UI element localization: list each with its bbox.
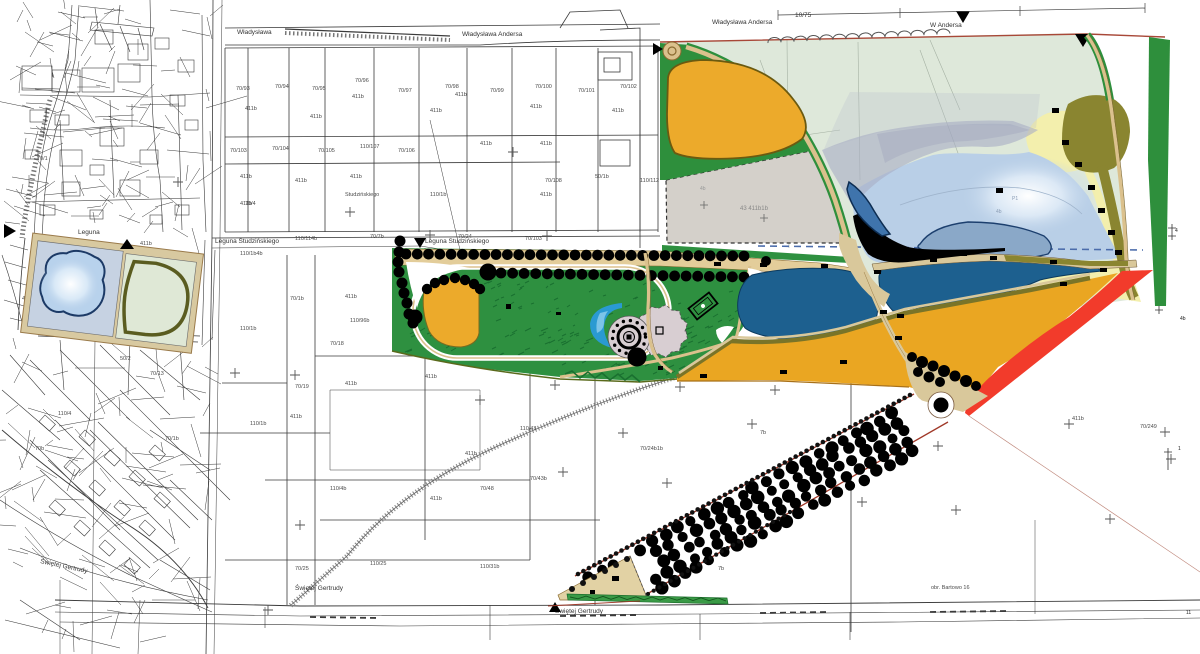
svg-text:411b: 411b — [480, 141, 492, 147]
svg-text:110/25: 110/25 — [370, 561, 386, 567]
svg-text:411b: 411b — [465, 451, 477, 457]
svg-text:Leguna Studzińskiego: Leguna Studzińskiego — [425, 238, 489, 245]
svg-text:70/13: 70/13 — [150, 371, 164, 377]
svg-text:110/4: 110/4 — [58, 411, 71, 417]
svg-text:Władysława Andersa: Władysława Andersa — [462, 31, 523, 38]
svg-text:70/97: 70/97 — [398, 88, 412, 94]
svg-text:110/1b: 110/1b — [430, 192, 446, 198]
svg-text:43 411b1b: 43 411b1b — [740, 206, 769, 212]
svg-text:411b: 411b — [295, 178, 307, 184]
svg-text:70/96: 70/96 — [355, 78, 369, 84]
svg-text:411b: 411b — [530, 104, 542, 110]
svg-text:Studzińskiego: Studzińskiego — [345, 192, 379, 198]
svg-text:110/31b: 110/31b — [480, 564, 499, 570]
svg-text:70/99: 70/99 — [490, 88, 504, 94]
svg-text:110/1b4b: 110/1b4b — [240, 251, 263, 257]
svg-text:70/103: 70/103 — [525, 236, 542, 242]
svg-text:P1: P1 — [1012, 196, 1018, 202]
svg-text:411b: 411b — [425, 374, 437, 380]
svg-text:70/24b1b: 70/24b1b — [640, 446, 663, 452]
svg-text:4b: 4b — [996, 209, 1002, 215]
svg-text:411b: 411b — [240, 174, 252, 180]
svg-text:70/7b: 70/7b — [370, 234, 384, 240]
svg-text:7b: 7b — [718, 566, 724, 572]
svg-text:411b: 411b — [350, 174, 362, 180]
svg-text:110/4b: 110/4b — [330, 486, 346, 492]
svg-text:obr. Bartowo 16: obr. Bartowo 16 — [931, 585, 970, 591]
svg-text:411b: 411b — [540, 141, 552, 147]
svg-text:Władysława Andersa: Władysława Andersa — [712, 19, 773, 26]
svg-text:110/1b: 110/1b — [250, 421, 266, 427]
svg-text:110/107: 110/107 — [360, 144, 379, 150]
svg-text:70/19: 70/19 — [295, 384, 309, 390]
svg-text:50/1b: 50/1b — [595, 174, 609, 180]
svg-text:411b: 411b — [612, 108, 624, 114]
svg-text:70/102: 70/102 — [620, 84, 637, 90]
svg-text:70/103: 70/103 — [230, 148, 247, 154]
svg-text:Władysława: Władysława — [237, 29, 272, 36]
svg-text:411b: 411b — [345, 381, 357, 387]
svg-text:11: 11 — [1186, 610, 1191, 616]
svg-text:70/108: 70/108 — [545, 178, 562, 184]
svg-text:4b: 4b — [700, 186, 706, 192]
svg-text:110/112: 110/112 — [640, 178, 659, 184]
svg-text:10/75: 10/75 — [795, 12, 812, 19]
svg-text:411b: 411b — [290, 414, 302, 420]
svg-text:70/94: 70/94 — [275, 84, 289, 90]
svg-text:70/95: 70/95 — [312, 86, 326, 92]
svg-text:411b: 411b — [540, 192, 552, 198]
svg-text:110/43: 110/43 — [520, 426, 536, 432]
svg-text:70/4: 70/4 — [245, 201, 256, 207]
svg-text:110/96b: 110/96b — [350, 318, 369, 324]
svg-text:70/1: 70/1 — [37, 156, 48, 162]
svg-text:110/1b: 110/1b — [240, 326, 256, 332]
svg-text:70/18: 70/18 — [330, 341, 344, 347]
svg-text:70/1b: 70/1b — [290, 296, 304, 302]
svg-text:70/101: 70/101 — [578, 88, 595, 94]
svg-text:70/98: 70/98 — [445, 84, 459, 90]
svg-text:70/48: 70/48 — [480, 486, 494, 492]
svg-text:70/249: 70/249 — [1140, 424, 1157, 430]
svg-text:70/1b: 70/1b — [165, 436, 179, 442]
svg-text:70/25: 70/25 — [295, 566, 309, 572]
svg-text:7b: 7b — [760, 430, 766, 436]
svg-text:Leguna: Leguna — [78, 229, 100, 236]
svg-text:70/100: 70/100 — [535, 84, 552, 90]
svg-text:Świętej Gertrudy: Świętej Gertrudy — [295, 583, 344, 592]
svg-text:411b: 411b — [245, 106, 257, 112]
svg-text:411b: 411b — [430, 496, 442, 502]
svg-text:4: 4 — [1175, 228, 1178, 234]
svg-text:1: 1 — [1178, 446, 1181, 452]
svg-text:70/43b: 70/43b — [530, 476, 547, 482]
svg-text:411b: 411b — [352, 94, 364, 100]
svg-text:70/106: 70/106 — [398, 148, 415, 154]
svg-text:411b: 411b — [455, 92, 467, 98]
svg-text:70/104: 70/104 — [272, 146, 289, 152]
svg-text:70/93: 70/93 — [236, 86, 250, 92]
svg-text:411b: 411b — [345, 294, 357, 300]
svg-text:4b: 4b — [1180, 316, 1186, 322]
svg-text:Leguna Studzińskiego: Leguna Studzińskiego — [215, 238, 279, 245]
svg-text:50/2: 50/2 — [120, 356, 131, 362]
svg-text:70b: 70b — [35, 446, 44, 452]
svg-text:411b: 411b — [430, 108, 442, 114]
svg-text:W Andersa: W Andersa — [930, 22, 962, 29]
svg-text:70/105: 70/105 — [318, 148, 335, 154]
svg-text:411b: 411b — [310, 114, 322, 120]
svg-text:411b: 411b — [1072, 416, 1084, 422]
svg-text:Świętej Gertrudy: Świętej Gertrudy — [555, 606, 604, 615]
svg-text:110/114b: 110/114b — [295, 236, 317, 242]
